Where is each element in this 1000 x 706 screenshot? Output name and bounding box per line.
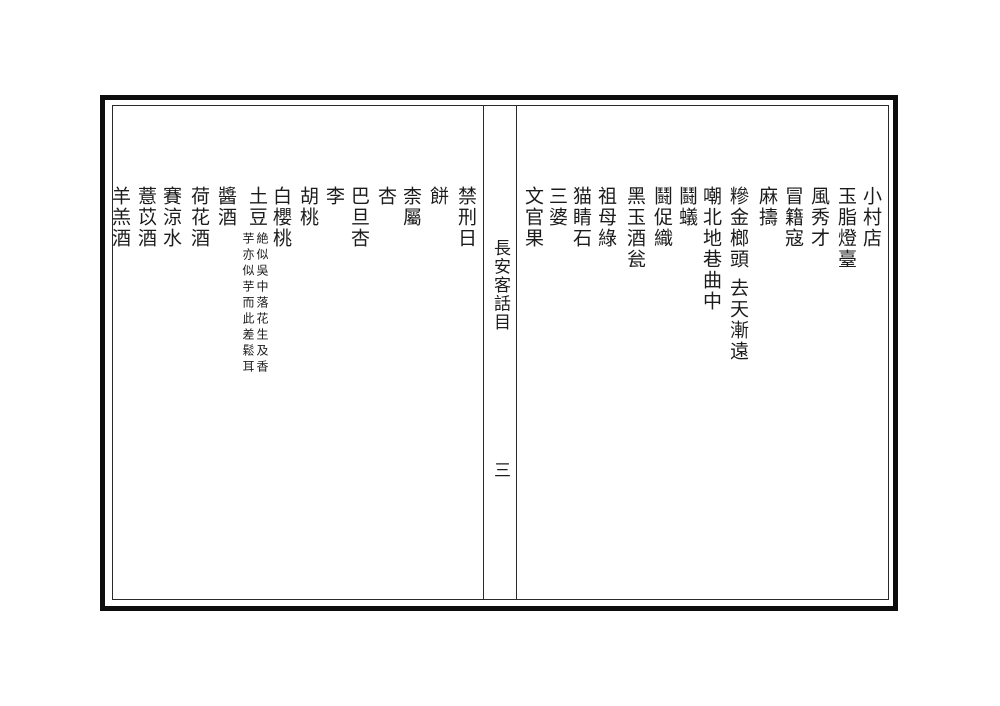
toc-entry: 黑玉酒瓮 [621, 186, 647, 270]
toc-entry: 糝金榔頭 [724, 186, 750, 270]
toc-entry: 去天漸遠 [724, 278, 750, 362]
toc-entry: 羊羔酒 [106, 186, 132, 249]
toc-entry: 風秀才 [805, 186, 831, 249]
toc-entry: 薏苡酒 [132, 186, 158, 249]
toc-entry: 鬪蟻 [673, 186, 699, 228]
toc-entry: 杏 [372, 186, 398, 207]
toc-entry: 麻擣 [753, 186, 779, 228]
toc-entry: 巴旦杏 [345, 186, 371, 249]
toc-entry: 猫睛石 [567, 186, 593, 249]
toc-entry: 文官果 [519, 186, 545, 249]
toc-entry: 餅 [424, 186, 450, 207]
toc-entry: 禁刑日 [452, 186, 478, 249]
toc-entry: 冒籍寇 [779, 186, 805, 249]
toc-entry-note: 絶似吳中落花生及香 [255, 232, 269, 376]
toc-entry: 柰屬 [397, 186, 423, 228]
toc-entry: 李 [320, 186, 346, 207]
toc-entry: 土豆 [243, 186, 269, 228]
spine-divider-right [483, 106, 484, 600]
toc-entry: 白櫻桃 [267, 186, 293, 249]
toc-entry: 玉脂燈臺 [832, 186, 858, 270]
book-page: 長安客話目 三 小村店 玉脂燈臺 風秀才 冒籍寇 麻擣 糝金榔頭 去天漸遠 嘲北… [0, 0, 1000, 706]
toc-entry: 胡桃 [294, 186, 320, 228]
toc-entry: 小村店 [857, 186, 883, 249]
toc-entry: 賽涼水 [157, 186, 183, 249]
spine-divider-left [516, 106, 517, 600]
toc-entry-note: 芋亦似芋而此差鬆耳 [241, 232, 255, 376]
toc-entry: 嘲北地巷曲中 [697, 186, 723, 312]
toc-entry: 鬪促織 [648, 186, 674, 249]
book-title: 長安客話目 [484, 239, 516, 332]
toc-entry: 三婆 [543, 186, 569, 228]
page-number: 三 [484, 461, 516, 478]
toc-entry: 醬酒 [212, 186, 238, 228]
toc-entry: 荷花酒 [185, 186, 211, 249]
inner-border [112, 105, 889, 600]
toc-entry: 祖母綠 [592, 186, 618, 249]
